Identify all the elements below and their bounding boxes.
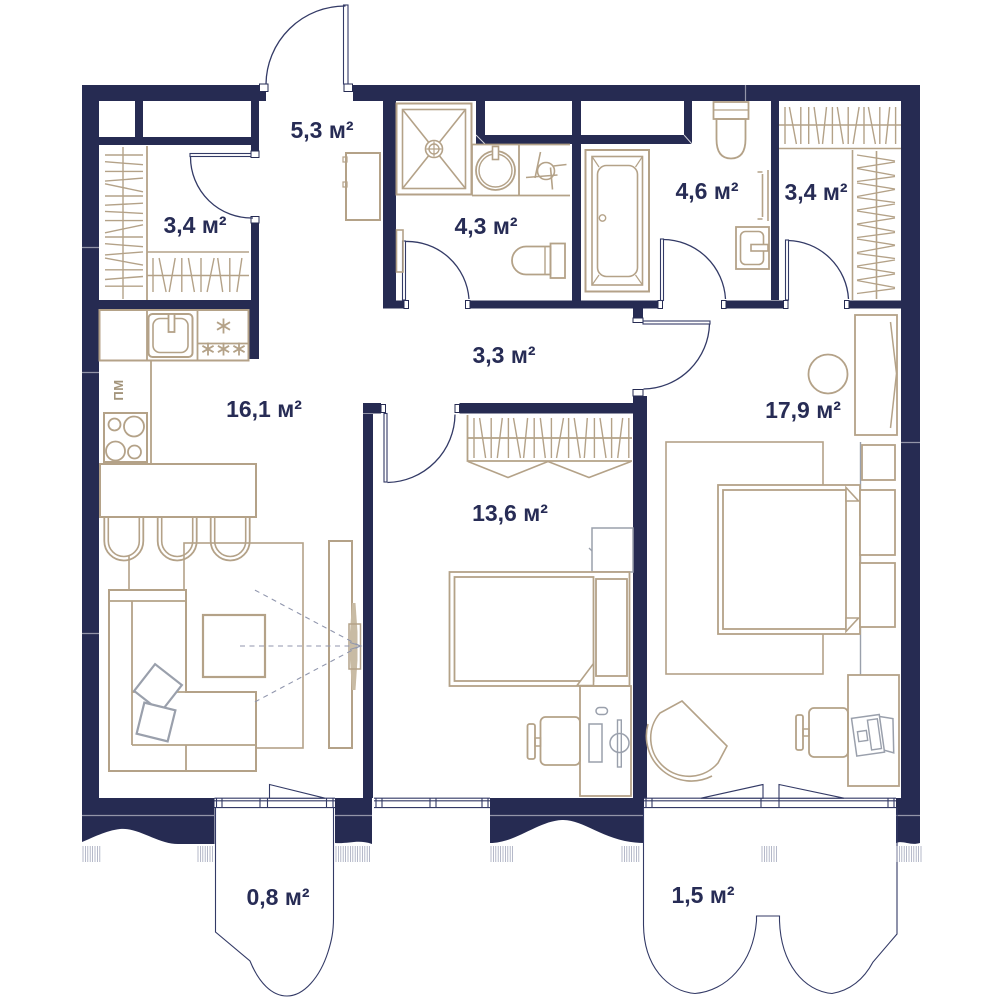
- svg-text:3,4 м²: 3,4 м²: [163, 212, 226, 238]
- svg-text:4,6 м²: 4,6 м²: [675, 178, 738, 204]
- svg-text:3,4 м²: 3,4 м²: [784, 179, 847, 205]
- svg-text:17,9 м²: 17,9 м²: [765, 397, 841, 423]
- svg-text:1,5 м²: 1,5 м²: [671, 882, 734, 908]
- svg-text:5,3 м²: 5,3 м²: [290, 117, 353, 143]
- svg-text:16,1 м²: 16,1 м²: [226, 396, 302, 422]
- svg-text:3,3 м²: 3,3 м²: [472, 342, 535, 368]
- svg-text:0,8 м²: 0,8 м²: [246, 884, 309, 910]
- svg-text:13,6 м²: 13,6 м²: [472, 500, 548, 526]
- svg-text:4,3 м²: 4,3 м²: [454, 213, 517, 239]
- svg-text:ПМ: ПМ: [111, 379, 126, 400]
